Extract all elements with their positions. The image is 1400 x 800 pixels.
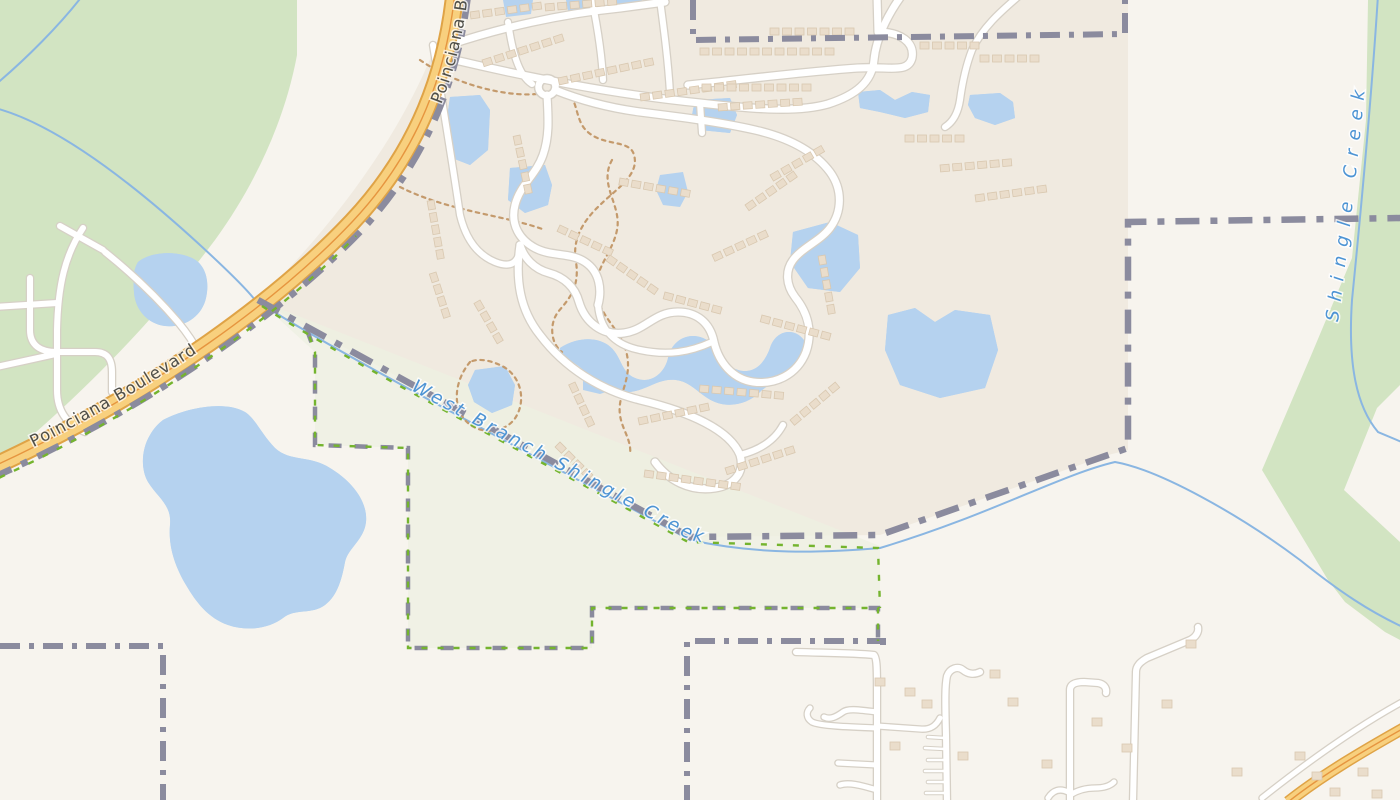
building [518,159,527,169]
building [668,187,678,195]
building [1330,788,1340,796]
building [631,180,641,188]
building [774,392,784,400]
building [930,135,939,142]
building [644,58,654,67]
building [768,100,777,108]
building [680,189,690,197]
building [1042,760,1052,768]
building [656,472,666,480]
building [790,84,799,91]
building [731,482,741,490]
building [507,6,517,14]
building [1122,744,1132,752]
building [665,89,675,97]
building [783,28,792,35]
building [607,0,617,6]
building [1186,640,1196,648]
building [713,48,722,55]
building [436,249,444,259]
building [702,84,711,91]
building [724,387,734,395]
map-viewport[interactable]: Poinciana Boulevard Poinciana Boulevard … [0,0,1400,800]
building [699,403,709,412]
building [532,2,542,10]
building [755,101,764,109]
building [570,1,580,9]
building [765,84,774,91]
building [890,742,900,750]
building [718,480,728,488]
map-canvas[interactable]: Poinciana Boulevard Poinciana Boulevard … [0,0,1400,800]
building [952,163,962,171]
building [788,48,797,55]
building [675,408,685,417]
building [482,9,492,17]
building [1030,55,1039,62]
building [495,7,505,15]
building [975,194,985,202]
building [818,255,826,265]
building [827,304,835,314]
building [1312,772,1322,780]
building [780,99,789,107]
building [793,98,802,106]
building [687,406,697,415]
building [520,4,530,12]
building [922,700,932,708]
building [749,389,759,397]
building [595,0,605,7]
building [558,76,568,85]
building [656,185,666,193]
building [513,135,522,145]
building [725,48,734,55]
building [706,479,716,487]
building [845,28,854,35]
building [427,200,435,210]
building [775,48,784,55]
building [582,0,592,8]
building [690,86,700,94]
building [802,84,811,91]
building [825,292,833,302]
building [712,386,722,394]
building [1005,55,1014,62]
building [943,135,952,142]
building [619,178,629,186]
building [770,28,779,35]
building [652,91,662,99]
building [955,135,964,142]
building [933,42,942,49]
building [1000,190,1010,198]
building [607,66,617,75]
building [681,475,691,483]
building [727,84,736,91]
building [800,48,809,55]
building [521,172,530,182]
building [1232,768,1242,776]
building [1162,700,1172,708]
building [582,71,592,80]
building [813,48,822,55]
building [516,147,525,157]
building [429,212,437,222]
building [631,61,641,70]
building [638,416,648,425]
building [643,182,653,190]
building [740,84,749,91]
building [434,237,442,247]
building [570,74,580,83]
building [945,42,954,49]
building [743,102,752,110]
building [980,55,989,62]
building [677,88,687,96]
building [619,63,629,72]
building [825,48,834,55]
building [650,414,660,423]
building [700,48,709,55]
building [970,42,979,49]
building [762,390,772,398]
building [777,84,786,91]
building [669,473,679,481]
building [750,48,759,55]
building [1037,185,1047,193]
building [940,164,950,172]
building [694,477,704,485]
building [752,84,761,91]
building [965,162,975,170]
building [918,135,927,142]
building [1372,790,1382,798]
building [595,68,605,77]
building [987,192,997,200]
building [833,28,842,35]
building [524,184,533,194]
building [699,385,709,393]
building [1025,187,1035,195]
building [808,28,817,35]
building [662,411,672,420]
building [795,28,804,35]
building [875,678,885,686]
building [1018,55,1027,62]
building [1002,159,1012,167]
building [905,688,915,696]
building [470,11,480,19]
building [1358,768,1368,776]
building [1092,718,1102,726]
building [977,161,987,169]
building [730,103,739,111]
building [737,388,747,396]
building [718,103,727,111]
building [820,267,828,277]
building [715,84,724,91]
building [822,280,830,290]
building [431,225,439,235]
building [920,42,929,49]
building [820,28,829,35]
building [557,2,567,10]
building [1295,752,1305,760]
building [1012,189,1022,197]
building [993,55,1002,62]
building [990,670,1000,678]
building [545,3,555,11]
building [905,135,914,142]
building [640,93,650,101]
building [738,48,747,55]
building [958,42,967,49]
building [644,470,654,478]
building [763,48,772,55]
building [990,160,1000,168]
building [1008,698,1018,706]
building [958,752,968,760]
